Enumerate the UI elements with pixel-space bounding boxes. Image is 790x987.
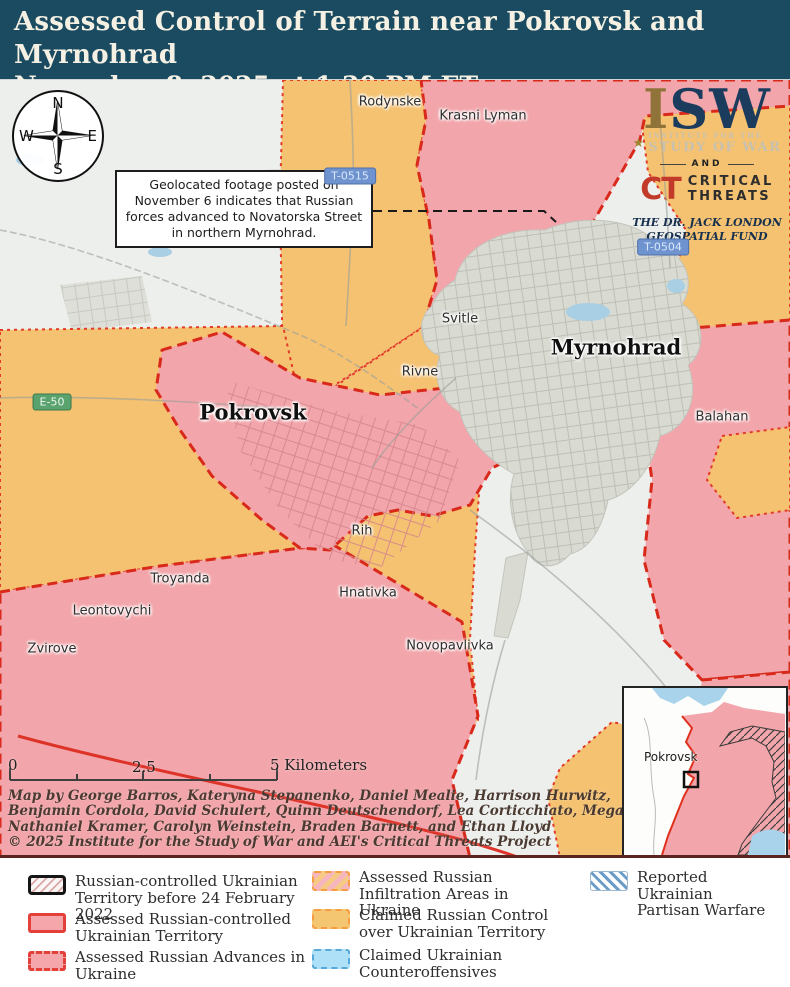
legend-item: Claimed Russian Control over Ukrainian T… <box>312 907 562 940</box>
ct-mark: CT <box>640 172 680 207</box>
road-label-e50: E-50 <box>33 394 72 411</box>
scale-end: 5 Kilometers <box>270 756 367 774</box>
map-area: N E S W Geolocated footage posted on Nov… <box>0 80 790 858</box>
legend-item: Assessed Russian-controlled Ukrainian Te… <box>28 911 308 944</box>
critical-label: CRITICAL <box>688 175 774 190</box>
critical-threats-logo: CT CRITICAL THREATS <box>628 172 786 207</box>
legend-label: Claimed Ukrainian Counteroffensives <box>359 947 562 980</box>
threats-label: THREATS <box>688 190 774 205</box>
town-label-krasni-lyman: Krasni Lyman <box>439 109 526 124</box>
town-label-hnativka: Hnativka <box>339 586 397 601</box>
legend-item: Assessed Russian Advances in Ukraine <box>28 949 308 982</box>
legend-swatch-partisan <box>590 871 628 891</box>
and-separator: AND <box>628 159 786 169</box>
town-label-leontovychi: Leontovychi <box>73 604 152 619</box>
compass-w: W <box>19 127 34 145</box>
town-label-balahan: Balahan <box>696 410 749 425</box>
title-bar: Assessed Control of Terrain near Pokrovs… <box>0 0 790 80</box>
scale-mid: 2.5 <box>132 758 156 776</box>
pond <box>148 247 172 257</box>
town-label-svitle: Svitle <box>442 312 478 327</box>
city-label-myrnohrad: Myrnohrad <box>551 335 681 360</box>
town-label-troyanda: Troyanda <box>150 572 209 587</box>
road-label-t0515: T-0515 <box>324 168 376 185</box>
star-icon: ★ <box>633 136 645 151</box>
inset-locator-map: Pokrovsk <box>622 686 788 858</box>
town-label-zvirove: Zvirove <box>28 642 77 657</box>
study-line: STUDY OF WAR <box>648 140 781 155</box>
isw-map-screenshot: Assessed Control of Terrain near Pokrovs… <box>0 0 790 987</box>
inset-canvas <box>624 688 785 855</box>
town-label-rivne: Rivne <box>402 365 439 380</box>
town-label-rodynske: Rodynske <box>359 95 421 110</box>
compass-e: E <box>88 127 97 145</box>
isw-ct-logo: ISW ★ INSTITUTE FOR THE STUDY OF WAR AND… <box>628 84 786 244</box>
compass-rose: N E S W <box>12 90 104 182</box>
credits-line: © 2025 Institute for the Study of War an… <box>8 835 687 850</box>
legend-label: Reported Ukrainian Partisan Warfare <box>637 869 780 919</box>
annotation-line: November 6 indicates that Russian <box>121 193 367 209</box>
city-label-pokrovsk: Pokrovsk <box>199 400 306 425</box>
scale-zero: 0 <box>8 756 18 774</box>
map-credits: Map by George Barros, Kateryna Stepanenk… <box>8 789 687 851</box>
and-label: AND <box>692 159 723 169</box>
town-label-rih: Rih <box>352 524 373 539</box>
legend-swatch-pre2022 <box>28 875 66 895</box>
legend-item: Claimed Ukrainian Counteroffensives <box>312 947 562 980</box>
legend-item: Reported Ukrainian Partisan Warfare <box>590 869 780 919</box>
credits-line: Nathaniel Kramer, Carolyn Weinstein, Bra… <box>8 820 687 835</box>
isw-wordmark: ISW <box>628 84 786 135</box>
legend-swatch-counteroffensives <box>312 949 350 969</box>
annotation-line: in northern Myrnohrad. <box>121 225 367 241</box>
road-label-t0504: T-0504 <box>637 239 689 256</box>
map-title: Assessed Control of Terrain near Pokrovs… <box>14 6 776 71</box>
compass-n: N <box>52 94 63 112</box>
credits-line: Benjamin Cordola, David Schulert, Quinn … <box>8 804 687 819</box>
institute-line: INSTITUTE FOR THE <box>648 131 781 140</box>
inset-pokrovsk-label: Pokrovsk <box>644 750 697 764</box>
annotation-line: forces advanced to Novatorska Street <box>121 209 367 225</box>
legend: Russian-controlled Ukrainian Territory b… <box>0 861 790 987</box>
town-label-novopavlivka: Novopavlivka <box>406 639 493 654</box>
legend-swatch-controlled <box>28 913 66 933</box>
isw-subtitle: ★ INSTITUTE FOR THE STUDY OF WAR <box>628 131 786 155</box>
compass-s: S <box>53 160 63 178</box>
legend-swatch-advances <box>28 951 66 971</box>
legend-swatch-claimed <box>312 909 350 929</box>
legend-label: Assessed Russian Advances in Ukraine <box>75 949 308 982</box>
legend-swatch-infiltration <box>312 871 350 891</box>
legend-label: Assessed Russian-controlled Ukrainian Te… <box>75 911 308 944</box>
legend-label: Claimed Russian Control over Ukrainian T… <box>359 907 562 940</box>
